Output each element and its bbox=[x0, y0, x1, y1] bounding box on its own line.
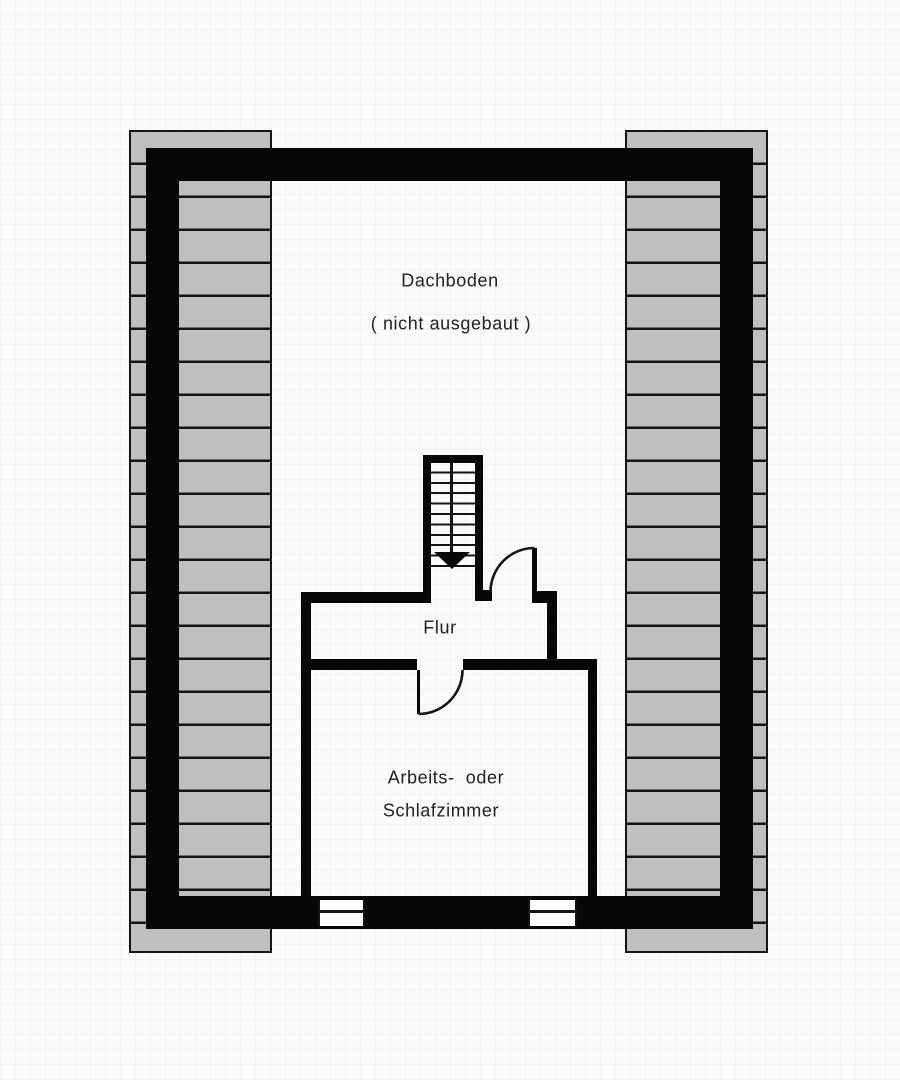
bedroom-door-leaf bbox=[417, 670, 420, 714]
bedroom-wall-right bbox=[588, 659, 597, 896]
window-left bbox=[318, 900, 365, 926]
attic-label: Dachboden bbox=[401, 271, 498, 292]
stair-wall-left bbox=[423, 455, 431, 603]
floor-plan: Dachboden ( nicht ausgebaut ) Flur Arbei… bbox=[0, 0, 900, 1080]
bedroom-wall-top-right bbox=[463, 659, 597, 670]
stair-down-arrow-icon bbox=[434, 552, 470, 569]
stair-center-line bbox=[450, 463, 453, 552]
stair-wall-top bbox=[423, 455, 483, 463]
hall-door-arc bbox=[491, 548, 535, 592]
stair-wall-right bbox=[475, 455, 483, 592]
bedroom-label-line2: Schlafzimmer bbox=[383, 801, 499, 822]
outer-wall-right bbox=[720, 148, 753, 929]
hall-wall-top-left bbox=[301, 592, 431, 603]
bedroom-label-line1: Arbeits- oder bbox=[388, 768, 504, 789]
outer-wall-bottom bbox=[146, 896, 753, 929]
window-right bbox=[528, 900, 577, 926]
outer-wall-top bbox=[146, 148, 753, 181]
outer-wall-left bbox=[146, 148, 179, 929]
hall-label: Flur bbox=[423, 618, 456, 639]
stair-wall-foot bbox=[475, 590, 492, 601]
interior-wall-left bbox=[301, 592, 311, 896]
bedroom-wall-top-left bbox=[301, 659, 417, 670]
bedroom-door-arc bbox=[419, 670, 463, 714]
hall-door-leaf bbox=[532, 548, 537, 592]
attic-note-label: ( nicht ausgebaut ) bbox=[371, 314, 532, 335]
